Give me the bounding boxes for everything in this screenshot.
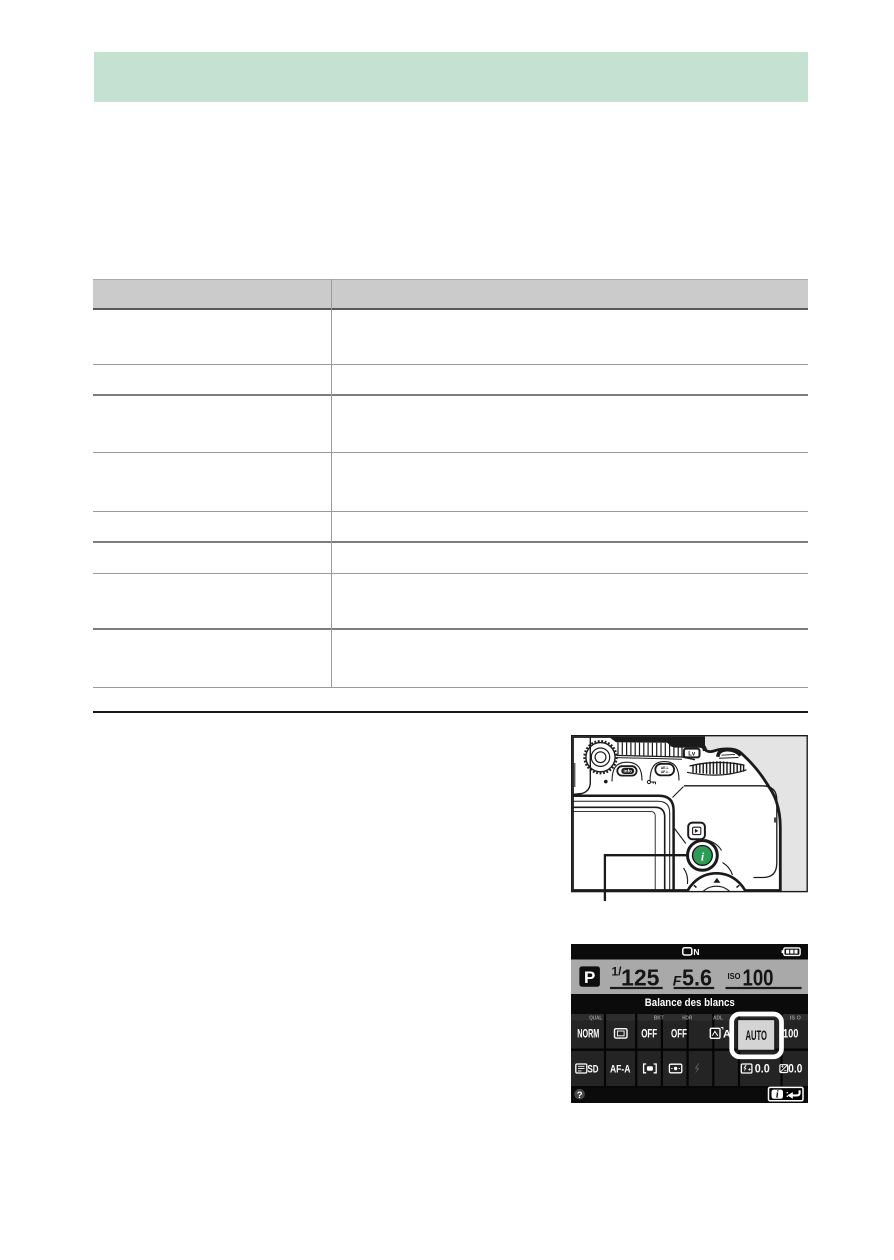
svg-text:IS O: IS O [790,1015,801,1021]
svg-text:OFF: OFF [671,1029,687,1041]
svg-text:F: F [673,972,682,988]
svg-text:AUTO: AUTO [745,1027,767,1043]
svg-text:100: 100 [783,1029,799,1041]
svg-text:info: info [623,769,632,774]
svg-text:ISO: ISO [728,972,741,981]
svg-text:Balance des blancs: Balance des blancs [645,997,735,1009]
svg-text:BKT: BKT [654,1015,664,1021]
svg-text:0.0: 0.0 [755,1064,770,1076]
svg-text:P: P [584,968,595,987]
svg-text:125: 125 [621,965,660,991]
svg-text:AF-L: AF-L [661,770,669,774]
svg-text:Lv: Lv [688,751,696,757]
svg-text:i: i [776,1089,779,1100]
svg-text::: : [786,1089,789,1099]
svg-text:HDR: HDR [682,1015,692,1021]
svg-text:5.6: 5.6 [682,965,712,991]
svg-text:100: 100 [743,965,774,991]
svg-text:QUAL: QUAL [589,1015,602,1021]
svg-text:ADL: ADL [713,1015,723,1021]
svg-text:AF-A: AF-A [610,1064,631,1076]
svg-text:NORM: NORM [577,1029,599,1041]
svg-text:?: ? [577,1090,583,1101]
svg-text:N: N [693,947,699,957]
svg-text:0.0: 0.0 [788,1064,802,1076]
svg-text:OFF: OFF [641,1029,657,1041]
svg-text:SD: SD [588,1064,599,1076]
